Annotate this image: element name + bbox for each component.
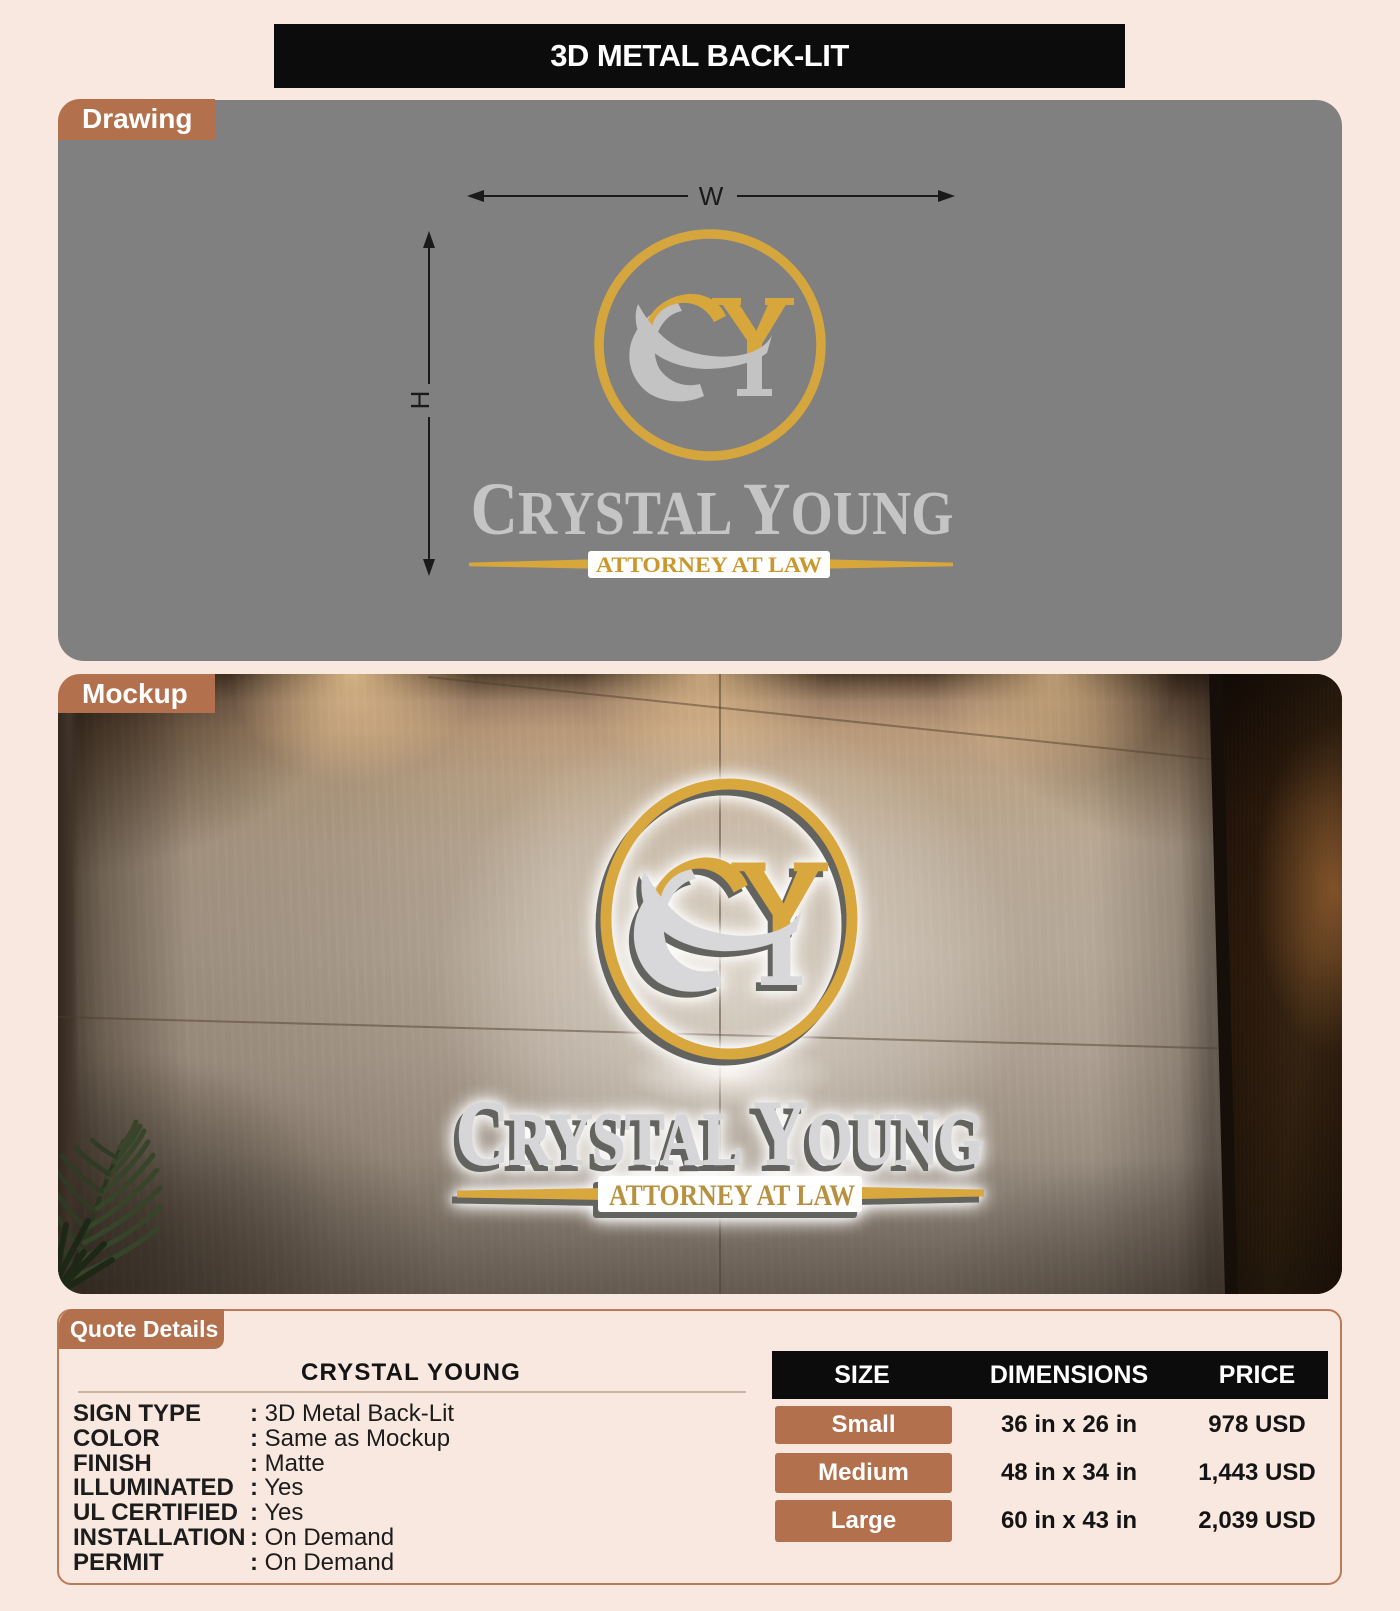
svg-text:H: H bbox=[405, 391, 435, 410]
svg-text:ATTORNEY AT LAW: ATTORNEY AT LAW bbox=[596, 552, 822, 577]
svg-text:CRYSTAL YOUNG: CRYSTAL YOUNG bbox=[456, 1082, 984, 1184]
svg-text:W: W bbox=[699, 181, 724, 211]
svg-text:CRYSTAL YOUNG: CRYSTAL YOUNG bbox=[471, 468, 954, 551]
svg-text:ATTORNEY AT LAW: ATTORNEY AT LAW bbox=[609, 1179, 855, 1212]
